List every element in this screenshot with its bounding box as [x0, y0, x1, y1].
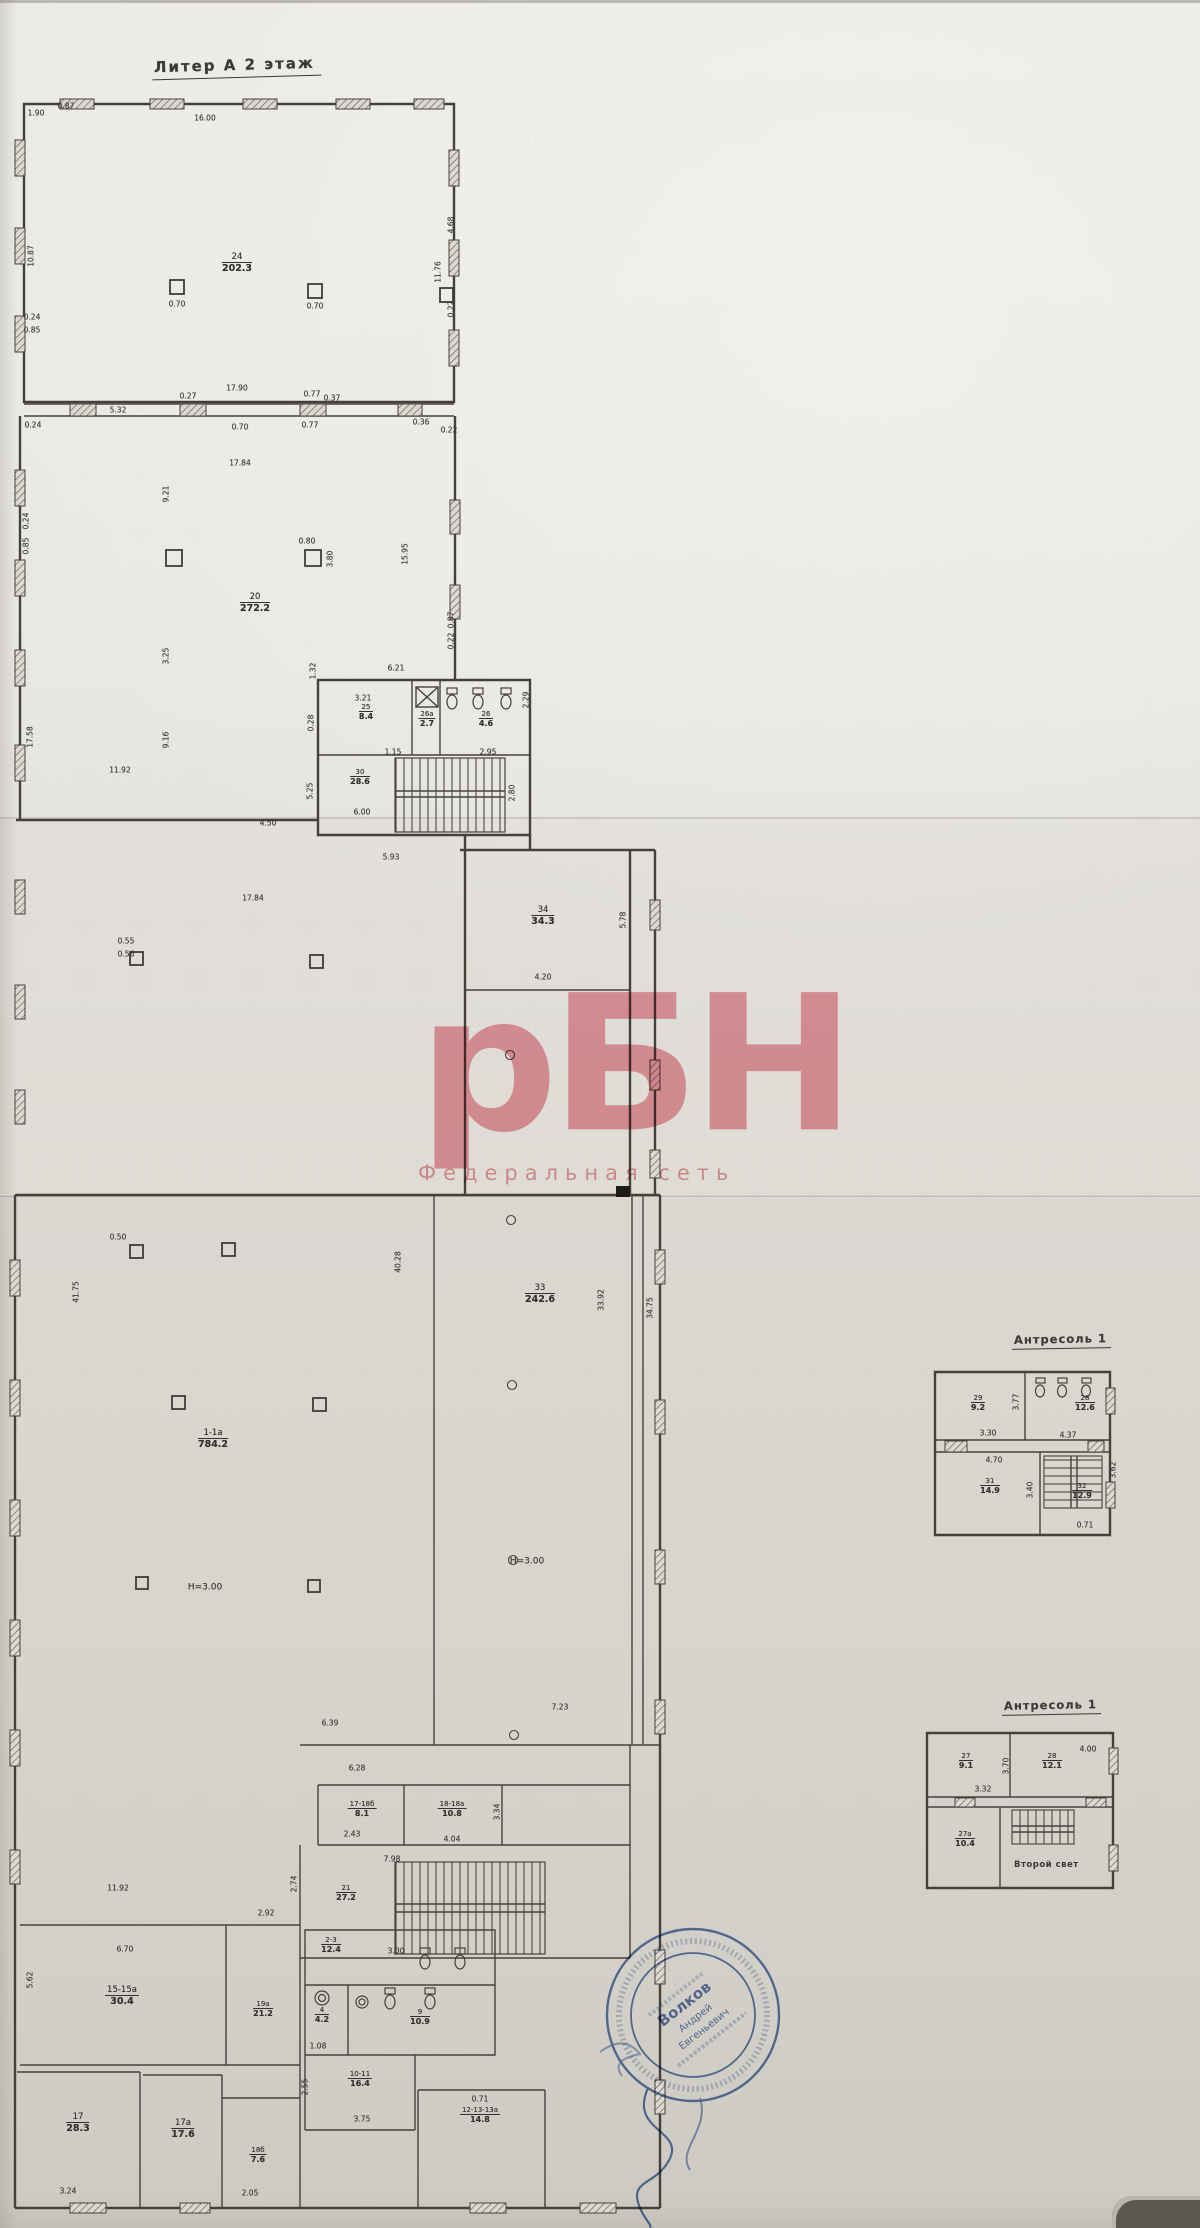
stamp: Волков Андрей Евгеньевич: [0, 0, 1200, 2228]
scanned-floor-plan-page: Литер А 2 этаж: [0, 0, 1200, 2228]
photo-corner-artifact: [1112, 2196, 1200, 2228]
signature-stroke: [637, 2088, 672, 2228]
